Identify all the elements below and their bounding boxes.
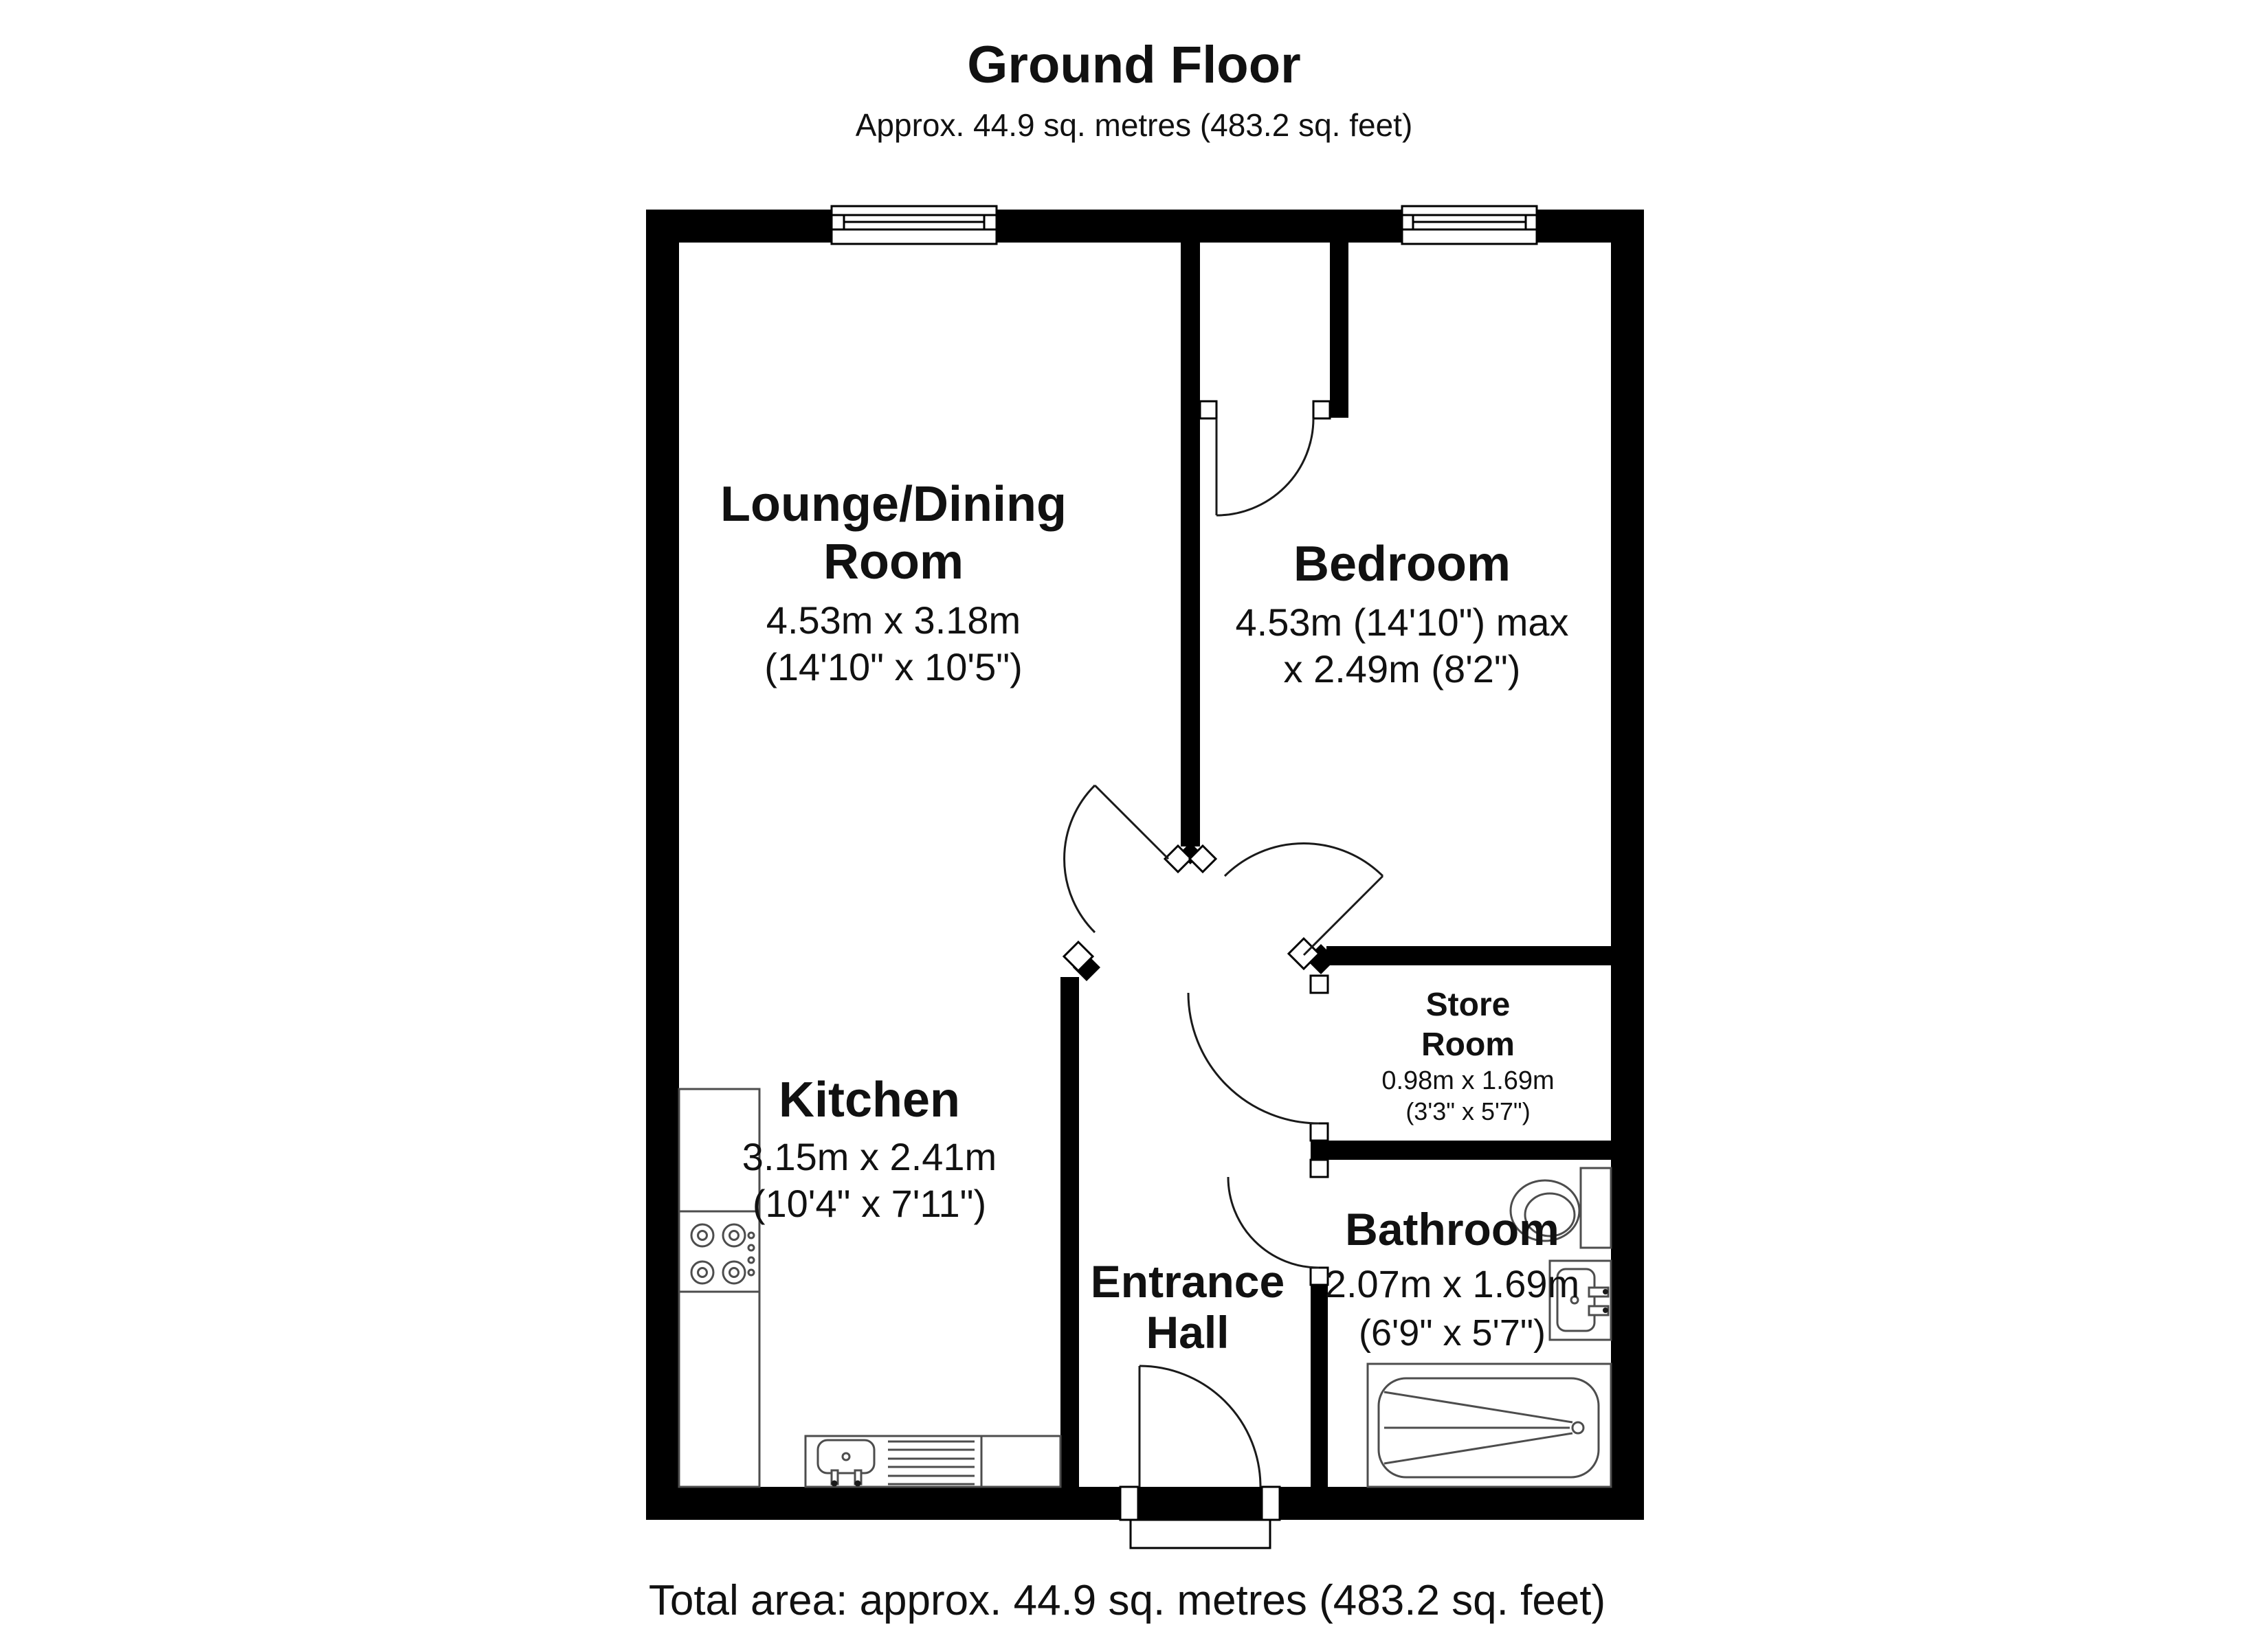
wall-left [646,210,679,1520]
page-title: Ground Floor [967,36,1300,94]
bathtub [1368,1364,1611,1487]
bathroom-dims-imperial: (6'9" x 5'7") [1359,1312,1546,1354]
wall-hall-bathroom [1311,1285,1328,1487]
lounge-name-1: Lounge/Dining [720,477,1067,532]
door-front-entrance [1139,1366,1260,1487]
hall-name-2: Hall [1146,1307,1229,1358]
kitchen-dims-imperial: (10'4" x 7'11") [753,1182,986,1225]
door-lounge [1065,785,1168,932]
label-store-room: Store Room 0.98m x 1.69m (3'3" x 5'7") [1381,987,1554,1125]
jamb-store-top [1311,976,1328,993]
wall-kitchen-hall [1060,977,1079,1487]
page-header: Ground Floor Approx. 44.9 sq. metres (48… [856,36,1413,143]
jamb-bath-top [1311,1160,1328,1177]
room-labels: Lounge/Dining Room 4.53m x 3.18m (14'10"… [720,477,1579,1358]
jamb-store-bottom [1311,1123,1328,1141]
front-door-threshold [1131,1520,1270,1548]
label-entrance-hall: Entrance Hall [1091,1256,1285,1358]
door-store-room [1188,993,1319,1123]
kitchen-dims-metric: 3.15m x 2.41m [742,1135,997,1178]
wall-store-south [1311,1141,1611,1160]
store-dims-imperial: (3'3" x 5'7") [1405,1097,1530,1125]
label-bedroom: Bedroom 4.53m (14'10") max x 2.49m (8'2"… [1236,537,1569,691]
toilet-cistern [1581,1168,1611,1248]
wall-right [1611,210,1644,1520]
sink-bowl [818,1440,874,1473]
jamb-cupboard-left [1200,401,1216,418]
kitchen-name: Kitchen [779,1073,960,1128]
hall-name-1: Entrance [1091,1256,1285,1307]
total-area-label: Total area: approx. 44.9 sq. metres (483… [649,1577,1605,1624]
label-bathroom: Bathroom 2.07m x 1.69m (6'9" x 5'7") [1325,1204,1579,1354]
lounge-name-2: Room [823,535,964,590]
door-bathroom [1228,1177,1319,1268]
lounge-dims-imperial: (14'10" x 10'5") [764,645,1023,688]
bathroom-name: Bathroom [1345,1204,1559,1255]
bedroom-dims-1: 4.53m (14'10") max [1236,601,1569,644]
kitchen-sink-unit [805,1436,1060,1487]
window-lounge [832,206,997,244]
store-name-2: Room [1421,1027,1515,1063]
label-lounge: Lounge/Dining Room 4.53m x 3.18m (14'10"… [720,477,1067,688]
store-dims-metric: 0.98m x 1.69m [1381,1066,1554,1095]
page-subtitle: Approx. 44.9 sq. metres (483.2 sq. feet) [856,107,1413,143]
wall-lounge-divider [1181,243,1200,846]
bedroom-dims-2: x 2.49m (8'2") [1284,647,1521,691]
floorplan-canvas: Ground Floor Approx. 44.9 sq. metres (48… [0,0,2268,1649]
lounge-dims-metric: 4.53m x 3.18m [766,598,1021,642]
door-bedroom-cupboard [1216,418,1313,515]
jamb-cupboard-right [1313,401,1330,418]
window-bedroom [1402,206,1537,244]
bathroom-dims-metric: 2.07m x 1.69m [1325,1262,1579,1305]
wall-bedroom-cupboard [1330,243,1348,418]
bedroom-name: Bedroom [1293,537,1511,592]
label-kitchen: Kitchen 3.15m x 2.41m (10'4" x 7'11") [742,1073,997,1225]
wall-store-north [1326,946,1611,965]
wall-bottom [646,1487,1644,1520]
store-name-1: Store [1426,987,1511,1023]
jamb-front-right [1262,1487,1280,1520]
jamb-front-left [1120,1487,1138,1520]
